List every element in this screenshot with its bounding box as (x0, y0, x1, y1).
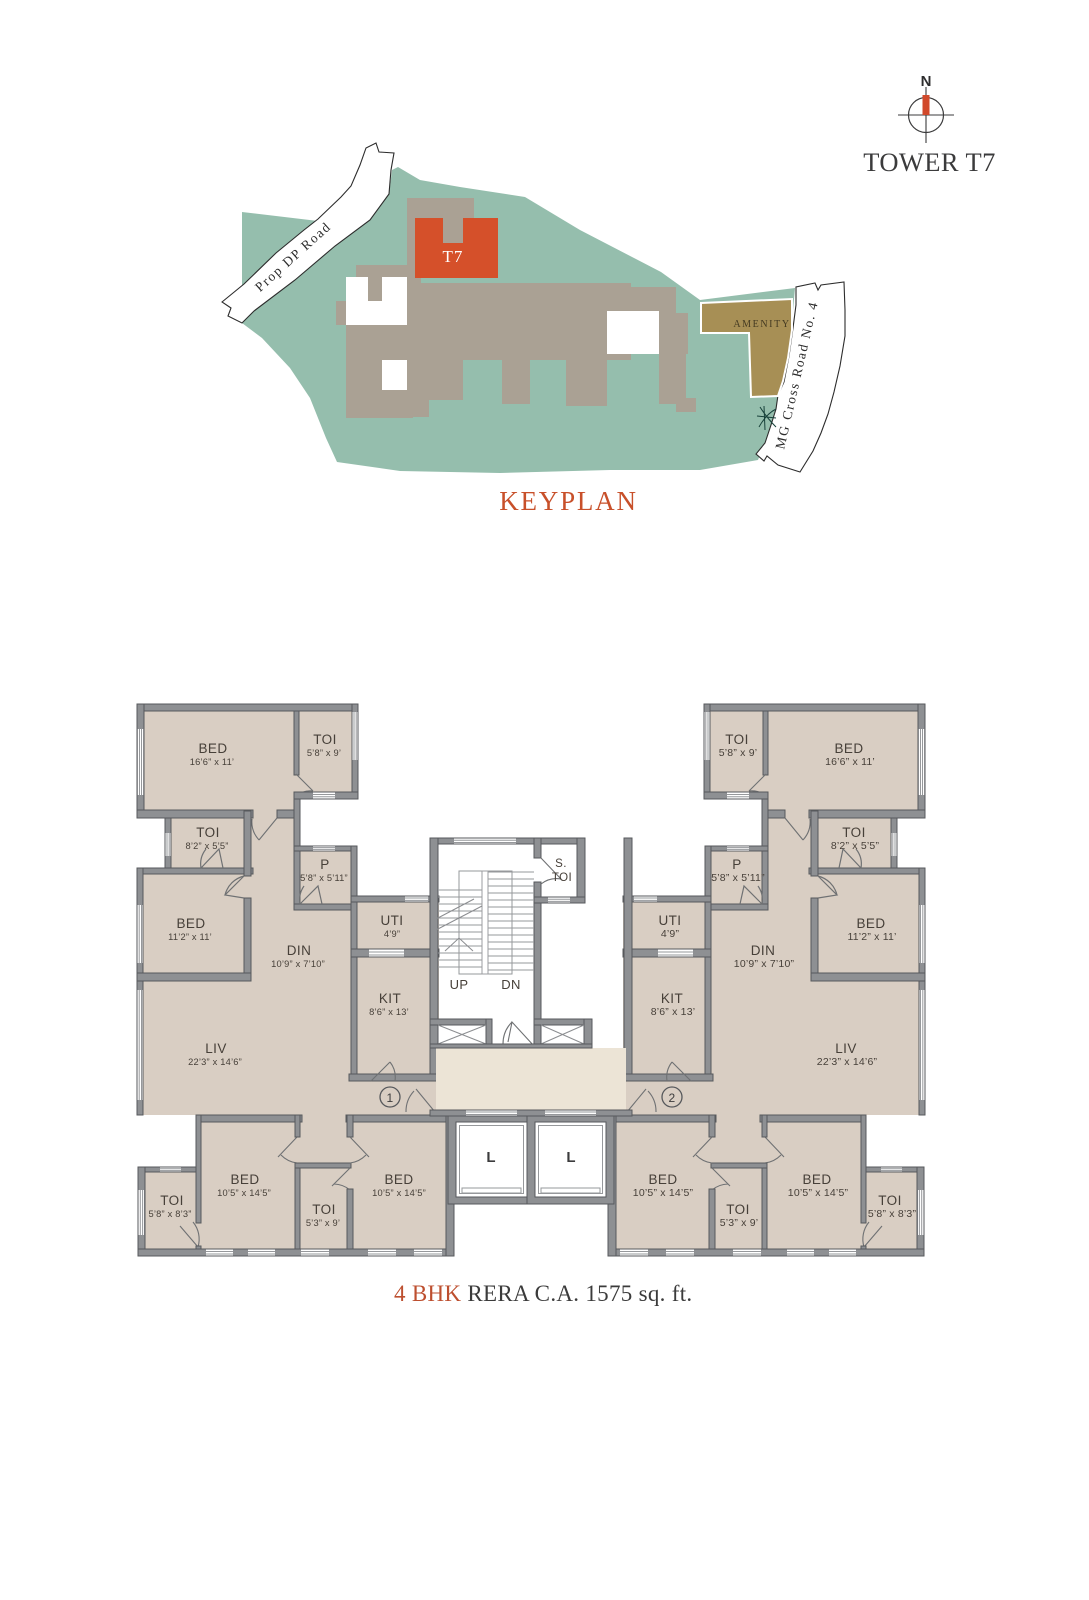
svg-text:LIV: LIV (835, 1041, 856, 1056)
svg-text:11’2” x 11’: 11’2” x 11’ (168, 932, 212, 942)
svg-text:22’3” x 14’6”: 22’3” x 14’6” (817, 1056, 878, 1068)
svg-text:TOI: TOI (842, 825, 865, 840)
svg-text:4’9”: 4’9” (384, 929, 400, 939)
svg-text:5’3” x 9’: 5’3” x 9’ (306, 1218, 340, 1228)
svg-text:1: 1 (386, 1091, 393, 1105)
svg-text:5’8” x 9’: 5’8” x 9’ (719, 747, 758, 759)
svg-text:TOI: TOI (726, 1202, 749, 1217)
svg-text:KIT: KIT (379, 991, 401, 1006)
svg-text:4 BHK RERA C.A. 1575 sq. ft.: 4 BHK RERA C.A. 1575 sq. ft. (394, 1281, 693, 1306)
svg-text:BED: BED (385, 1172, 414, 1187)
svg-text:10’5” x 14’5”: 10’5” x 14’5” (633, 1187, 694, 1199)
svg-text:10’5” x 14’5”: 10’5” x 14’5” (788, 1187, 849, 1199)
svg-text:10’5” x 14’5”: 10’5” x 14’5” (372, 1188, 426, 1198)
svg-text:11’2” x 11’: 11’2” x 11’ (847, 931, 896, 943)
svg-text:TOI: TOI (878, 1193, 901, 1208)
svg-text:TOI: TOI (160, 1193, 183, 1208)
svg-text:10’5” x 14’5”: 10’5” x 14’5” (217, 1188, 271, 1198)
svg-text:TOI: TOI (313, 732, 336, 747)
svg-text:10’9” x 7’10”: 10’9” x 7’10” (734, 958, 795, 970)
svg-text:5’8” x 9’: 5’8” x 9’ (307, 748, 341, 758)
svg-text:S.: S. (555, 858, 567, 870)
svg-text:BED: BED (803, 1172, 832, 1187)
svg-text:TOI: TOI (725, 732, 748, 747)
svg-text:2: 2 (668, 1091, 675, 1105)
svg-text:T7: T7 (443, 247, 464, 266)
svg-text:KIT: KIT (661, 991, 683, 1006)
svg-text:BED: BED (857, 916, 886, 931)
svg-text:4’9”: 4’9” (661, 928, 680, 940)
svg-text:UTI: UTI (381, 913, 404, 928)
svg-text:DIN: DIN (287, 943, 311, 958)
svg-text:22’3” x 14’6”: 22’3” x 14’6” (188, 1057, 242, 1067)
svg-text:L: L (486, 1149, 495, 1166)
svg-text:5’8” x 8’3”: 5’8” x 8’3” (148, 1209, 191, 1219)
svg-text:LIV: LIV (205, 1041, 226, 1056)
svg-text:TOWER T7: TOWER T7 (863, 147, 996, 177)
svg-text:L: L (566, 1149, 575, 1166)
svg-text:BED: BED (199, 741, 228, 756)
svg-text:8’2” x 5’5”: 8’2” x 5’5” (185, 841, 228, 851)
svg-text:TOI: TOI (196, 825, 219, 840)
svg-text:5’8” x 8’3”: 5’8” x 8’3” (868, 1208, 917, 1220)
svg-text:5’8” x 5’11”: 5’8” x 5’11” (300, 873, 348, 883)
svg-text:BED: BED (835, 741, 864, 756)
svg-text:KEYPLAN: KEYPLAN (499, 486, 638, 516)
svg-text:DN: DN (501, 977, 521, 992)
svg-text:5’3” x 9’: 5’3” x 9’ (720, 1217, 759, 1229)
svg-text:10’9” x 7’10”: 10’9” x 7’10” (271, 959, 325, 969)
svg-text:P: P (320, 857, 329, 872)
svg-text:UTI: UTI (659, 913, 682, 928)
svg-text:BED: BED (177, 916, 206, 931)
svg-text:AMENITY: AMENITY (733, 319, 790, 330)
svg-text:8’2” x 5’5”: 8’2” x 5’5” (831, 840, 880, 852)
svg-text:8’6” x 13’: 8’6” x 13’ (369, 1007, 409, 1017)
svg-text:16’6” x 11’: 16’6” x 11’ (190, 757, 234, 767)
svg-text:TOI: TOI (552, 872, 572, 884)
svg-text:5’8” x 5’11”: 5’8” x 5’11” (711, 872, 765, 884)
svg-text:16’6” x 11’: 16’6” x 11’ (825, 756, 875, 768)
svg-text:8’6” x 13’: 8’6” x 13’ (651, 1006, 696, 1018)
svg-text:DIN: DIN (751, 943, 775, 958)
svg-text:UP: UP (450, 977, 469, 992)
svg-text:P: P (732, 857, 741, 872)
svg-text:BED: BED (649, 1172, 678, 1187)
svg-text:BED: BED (231, 1172, 260, 1187)
svg-text:TOI: TOI (312, 1202, 335, 1217)
svg-text:N: N (921, 73, 932, 90)
